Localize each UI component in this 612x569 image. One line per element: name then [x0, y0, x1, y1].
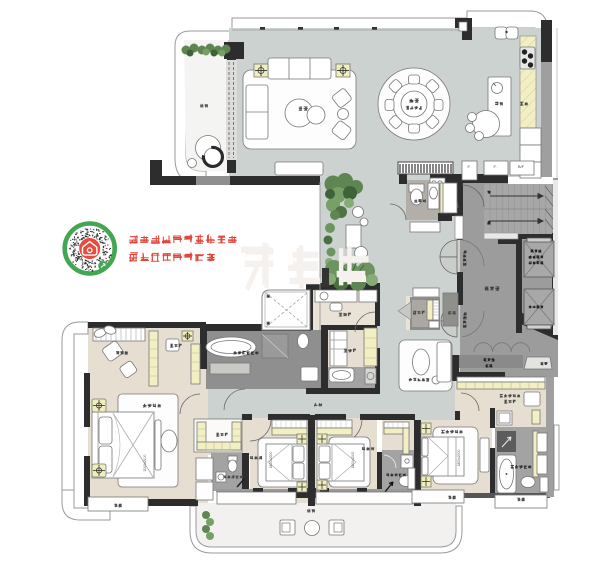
svg-text:1800x2000: 1800x2000	[457, 449, 461, 466]
svg-text:F.: F.	[493, 164, 496, 169]
svg-text:2000x2100: 2000x2100	[143, 454, 147, 471]
svg-text:F.: F.	[467, 164, 470, 169]
svg-text:1800x2000: 1800x2000	[269, 451, 273, 468]
svg-text:B/F: B/F	[518, 164, 525, 169]
svg-text:1800x2000: 1800x2000	[351, 451, 355, 468]
